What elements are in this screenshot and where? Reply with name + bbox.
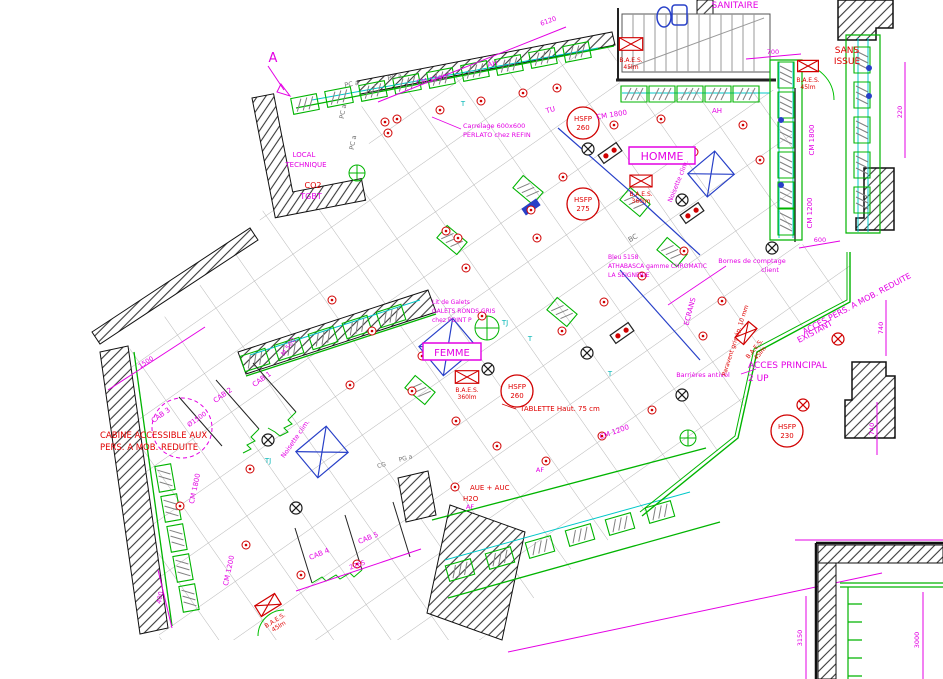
acces-principal-label2: 2 UP [748, 374, 769, 384]
bleu-note: Bleu 5158 [608, 254, 639, 261]
galets-note3: chez POINT P [432, 317, 472, 324]
carrelage-note: Carrelage 600x600 [463, 122, 525, 130]
local-technique-label: LOCAL [293, 151, 316, 159]
svg-text:HSFP: HSFP [574, 115, 592, 123]
corner-detail [806, 543, 943, 679]
cm1800-label: CM 1800 [808, 125, 816, 156]
dim-3150: 3150 [796, 630, 804, 647]
stairs [622, 14, 770, 72]
baes-lumen: 45lm [800, 84, 815, 91]
dim-700: 700 [767, 48, 779, 56]
tgbt-label: TGBT [299, 192, 322, 201]
section-marker-a: A [269, 51, 278, 66]
hsfp-marker: HSFP 260 [501, 375, 533, 407]
hsfp-marker: HSFP 230 [771, 415, 803, 447]
svg-text:230: 230 [780, 432, 793, 440]
sprinkler-icon [381, 118, 389, 126]
floor-plan-page: SANITAIRE SANS ISSUE HOMME FEMME LOCAL T… [0, 0, 943, 679]
galets-note2: GALETS RONDS GRIS [432, 308, 496, 315]
dim-740: 740 [877, 322, 885, 334]
svg-text:HSFP: HSFP [778, 423, 796, 431]
wall-right-block [856, 168, 894, 230]
baes-label: B.A.E.S. [796, 77, 819, 84]
floor-plan-drawing: SANITAIRE SANS ISSUE HOMME FEMME LOCAL T… [0, 0, 943, 679]
baes-label: B.A.E.S. [629, 191, 652, 198]
baes-lumen: 360lm [458, 394, 477, 401]
baes-label: B.A.E.S. [619, 57, 642, 64]
svg-text:HSFP: HSFP [574, 196, 592, 204]
crossed-circle-icon [582, 143, 594, 155]
galets-note: Lit de Galets [432, 299, 470, 306]
cm1200-label: CM 1200 [806, 198, 814, 229]
svg-text:260: 260 [510, 392, 523, 400]
cabine-note: CABINE ACCESSIBLE AUX [100, 431, 207, 441]
local-technique-label2: TECHNIQUE [284, 161, 326, 169]
zone-sanitaire-label: SANITAIRE [712, 1, 759, 11]
af-label: AF [536, 466, 544, 474]
zone-femme-label: FEMME [434, 348, 470, 359]
wall-top-right-block [838, 0, 893, 40]
t-label: T [460, 100, 466, 108]
bleu-note2: ATHABASCA gamme CHROMATIC [608, 263, 707, 270]
co2-label: CO2 [305, 181, 322, 190]
zone-sans-issue-label: SANS [835, 46, 860, 56]
tj-label: TJ [501, 319, 508, 327]
baes-label: B.A.E.S. [455, 387, 478, 394]
bornes-label2: client [761, 266, 779, 274]
svg-text:275: 275 [576, 205, 589, 213]
dim-740b: 740 [868, 423, 876, 435]
baes-lumen: 360lm [632, 198, 651, 205]
acces-principal-label: ACCES PRINCIPAL [748, 361, 827, 371]
baes-lumen: 45lm [623, 64, 638, 71]
bornes-label: Bornes de comptage [718, 257, 785, 265]
cabine-note2: PERS. A MOB. REDUITE [100, 443, 198, 453]
ah-label: AH [712, 107, 722, 115]
zone-sans-issue-label2: ISSUE [834, 57, 861, 67]
carrelage-note2: PERLATO chez REFIN [463, 131, 531, 139]
tj-label: TJ [264, 457, 271, 465]
af-label: AF [466, 503, 474, 511]
aue-label: AUE + AUC [470, 484, 510, 492]
bleu-note3: LA SEIGNERIE [608, 272, 650, 279]
svg-text:260: 260 [576, 124, 589, 132]
baes-icon [619, 38, 642, 51]
h2o-label: H2O [463, 495, 479, 503]
crossed-circle-red-icon [832, 333, 844, 345]
dim-600: 600 [814, 236, 826, 244]
dim-220: 220 [896, 106, 904, 118]
t-label: T [527, 335, 533, 343]
dim-3000: 3000 [913, 632, 921, 649]
t-label: T [607, 370, 613, 378]
zone-homme-label: HOMME [641, 150, 684, 163]
hsfp-marker: HSFP 260 [567, 107, 599, 139]
tablette-label: TABLETTE Haut. 75 cm [519, 405, 600, 413]
hsfp-marker: HSFP 275 [567, 188, 599, 220]
dim-6120: 6120 [539, 15, 557, 28]
section-arrow-icon [268, 66, 284, 90]
svg-text:HSFP: HSFP [508, 383, 526, 391]
